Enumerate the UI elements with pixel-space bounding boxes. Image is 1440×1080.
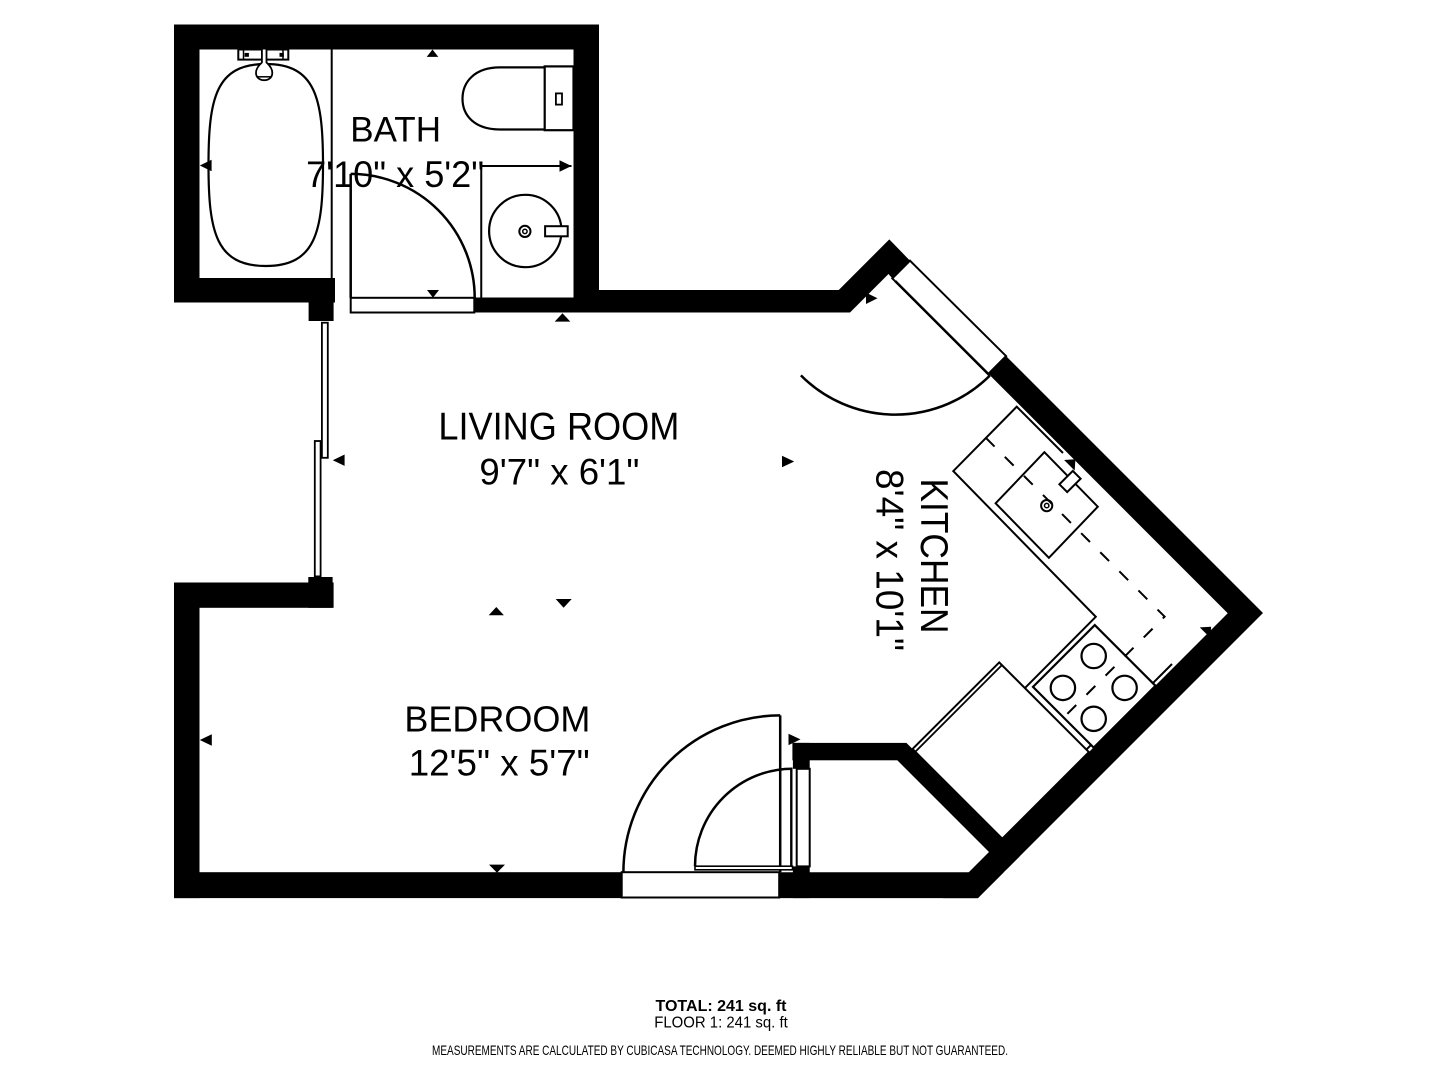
svg-text:MEASUREMENTS ARE CALCULATED BY: MEASUREMENTS ARE CALCULATED BY CUBICASA … [432,1042,1008,1058]
svg-text:LIVING ROOM: LIVING ROOM [438,405,679,448]
svg-text:12'5" x 5'7": 12'5" x 5'7" [409,741,590,783]
svg-text:TOTAL: 241 sq. ft: TOTAL: 241 sq. ft [656,998,788,1015]
svg-text:FLOOR 1: 241 sq. ft: FLOOR 1: 241 sq. ft [654,1014,788,1031]
svg-text:8'4" x 10'1": 8'4" x 10'1" [868,469,911,651]
svg-text:7'10" x 5'2": 7'10" x 5'2" [306,153,484,195]
svg-text:KITCHEN: KITCHEN [912,479,955,634]
svg-text:BATH: BATH [350,111,441,150]
svg-text:9'7" x 6'1": 9'7" x 6'1" [479,451,639,493]
svg-text:BEDROOM: BEDROOM [404,699,590,740]
